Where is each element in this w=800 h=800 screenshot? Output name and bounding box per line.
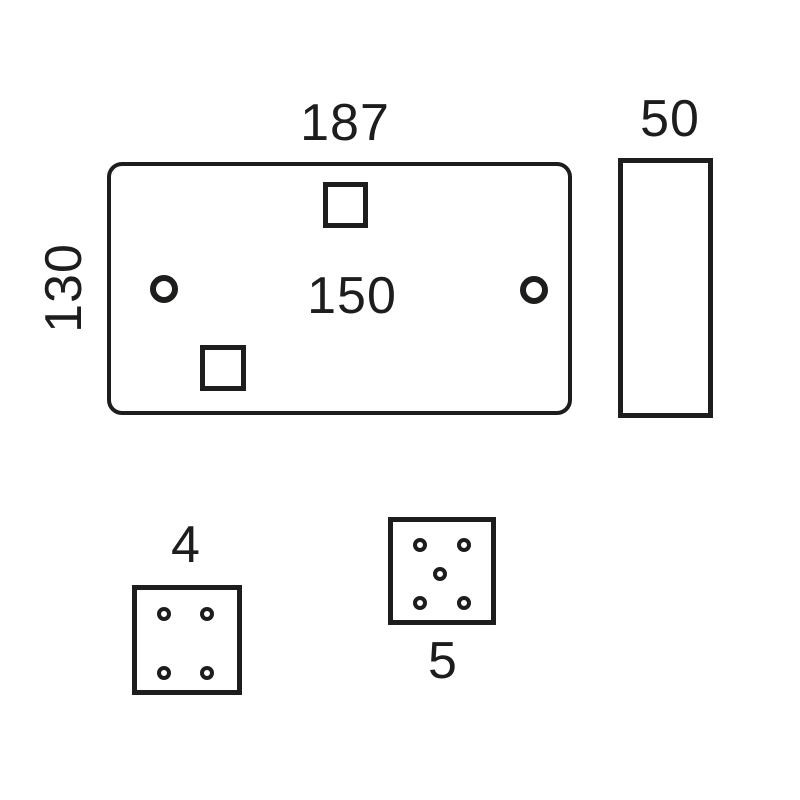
pin-hole <box>157 666 171 680</box>
plate-height-label: 130 <box>38 243 90 333</box>
pin-hole <box>413 596 427 610</box>
depth-label: 50 <box>640 93 700 145</box>
pin-hole <box>433 567 447 581</box>
side-profile-outline <box>618 158 713 418</box>
module-4-label: 4 <box>171 519 201 571</box>
pin-hole <box>457 538 471 552</box>
plate-width-label: 187 <box>300 97 390 149</box>
screw-hole-right <box>520 276 548 304</box>
knockout-square-top <box>323 182 368 228</box>
fixing-centres-label: 150 <box>307 270 397 322</box>
knockout-square-bottom <box>200 345 246 391</box>
technical-drawing-canvas: 187 130 150 50 4 5 <box>0 0 800 800</box>
screw-hole-left <box>150 275 178 303</box>
module-4-outline <box>132 585 242 695</box>
pin-hole <box>200 666 214 680</box>
pin-hole <box>200 607 214 621</box>
module-5-outline <box>388 517 496 625</box>
pin-hole <box>457 596 471 610</box>
module-5-label: 5 <box>428 635 458 687</box>
pin-hole <box>413 538 427 552</box>
pin-hole <box>157 607 171 621</box>
